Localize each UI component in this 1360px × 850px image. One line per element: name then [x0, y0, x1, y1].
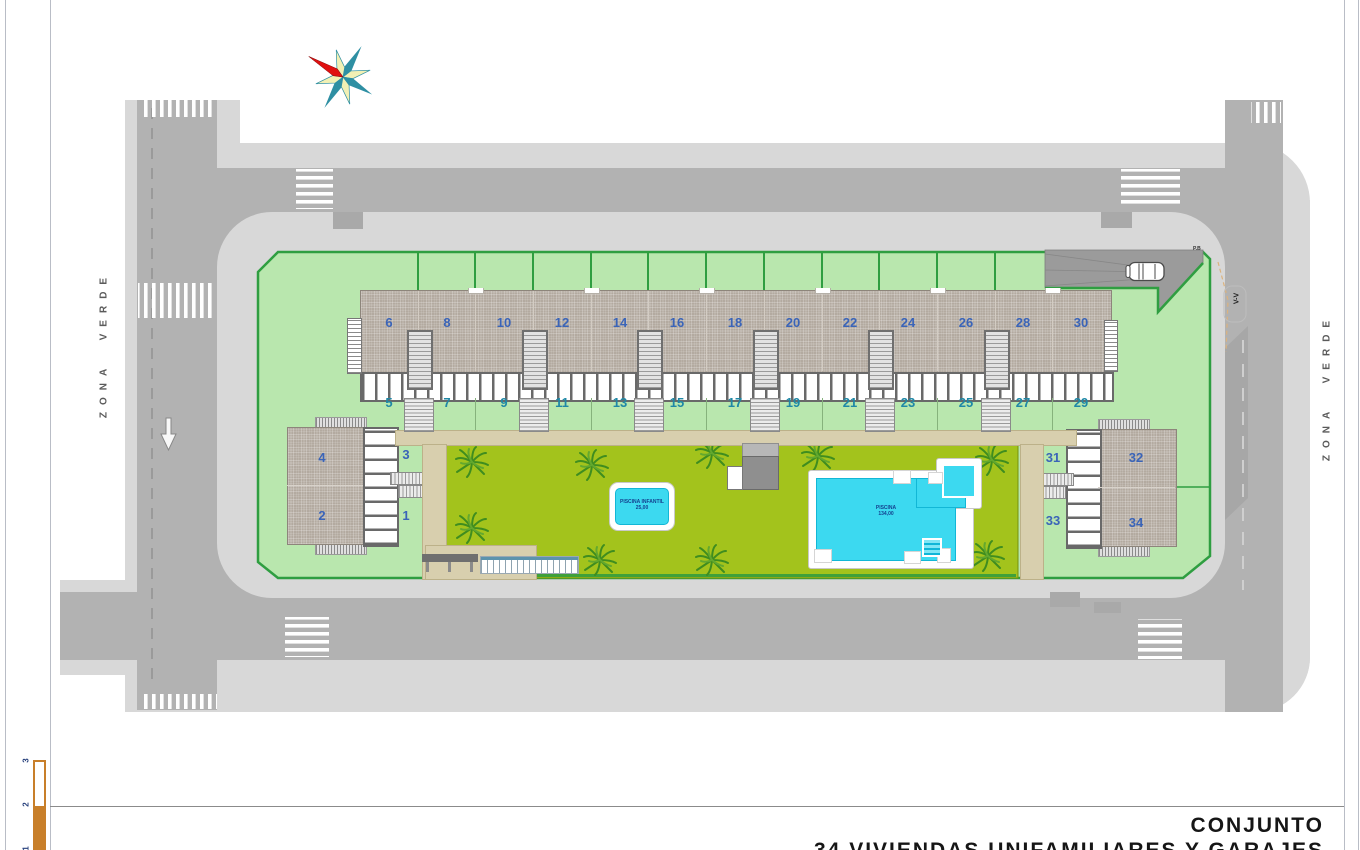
garden-stair: [981, 398, 1011, 432]
canopy-post: [470, 562, 473, 572]
unit-label: 17: [720, 395, 750, 411]
project-title-line1: CONJUNTO: [50, 814, 1344, 838]
site-plan-page: PISCINA INFANTIL25,00 PISCINA134,00 ZONA…: [0, 0, 1360, 850]
unit-label: 10: [489, 315, 519, 331]
section-marker-label: V-V: [1234, 284, 1241, 314]
unit-label: 16: [662, 315, 692, 331]
garden-divider: [706, 398, 707, 430]
unit-label: 5: [374, 395, 404, 411]
pool-platform: [904, 551, 921, 564]
garden-divider: [937, 398, 938, 430]
garden-stair: [865, 398, 895, 432]
unit-label: 24: [893, 315, 923, 331]
stair-shaft: [753, 330, 779, 390]
roof-unit-divider: [706, 291, 707, 371]
unit-label: 28: [1008, 315, 1038, 331]
jacuzzi: [942, 464, 976, 498]
unit-label: 33: [1038, 513, 1068, 529]
pool-steps: [922, 538, 942, 557]
roof-unit-divider: [937, 291, 938, 371]
roof-unit-divider: [822, 291, 823, 371]
canopy-post: [426, 562, 429, 572]
kids-pool-label: PISCINA INFANTIL25,00: [616, 499, 668, 511]
end-stair-west: [347, 318, 362, 374]
unit-label: 27: [1008, 395, 1038, 411]
unit-label: 30: [1066, 315, 1096, 331]
unit-label: 19: [778, 395, 808, 411]
garden-divider: [475, 398, 476, 430]
unit-label: 2: [307, 508, 337, 524]
roof-notch: [930, 288, 946, 294]
unit-label: 20: [778, 315, 808, 331]
project-title-line2: 34 VIVIENDAS UNIFAMILIARES Y GARAJES: [50, 839, 1344, 850]
unit-label: 25: [951, 395, 981, 411]
roof-notch: [1045, 288, 1061, 294]
pool-gate: [727, 466, 743, 490]
roof-unit-divider: [475, 291, 476, 371]
unit-label: 21: [835, 395, 865, 411]
garden-divider: [822, 398, 823, 430]
unit-label: 12: [547, 315, 577, 331]
crosswalk: [1251, 102, 1281, 123]
left-block-terraces: [363, 427, 399, 547]
unit-label: 31: [1038, 450, 1068, 466]
roof-notch: [468, 288, 484, 294]
unit-label: 15: [662, 395, 692, 411]
stair-shaft: [868, 330, 894, 390]
unit-label: 32: [1121, 450, 1151, 466]
garden-stair: [519, 398, 549, 432]
pb-marker-label: P.B: [1193, 246, 1201, 252]
unit-label: 6: [374, 315, 404, 331]
roof-notch: [815, 288, 831, 294]
title-block: CONJUNTO 34 VIVIENDAS UNIFAMILIARES Y GA…: [50, 806, 1344, 850]
crosswalk: [285, 617, 329, 657]
unit-label: 7: [432, 395, 462, 411]
pool-platform: [893, 470, 911, 484]
unit-label: 1: [391, 508, 421, 524]
pool-platform: [928, 472, 943, 484]
unit-label: 18: [720, 315, 750, 331]
crosswalk: [1121, 169, 1180, 208]
unit-label: 29: [1066, 395, 1096, 411]
garden-divider: [1052, 398, 1053, 430]
garden-divider: [591, 398, 592, 430]
garden-stair: [404, 398, 434, 432]
crosswalk: [296, 169, 333, 209]
left-block-roof: [287, 427, 365, 545]
traffic-arrow-icon: [161, 418, 176, 450]
unit-label: 26: [951, 315, 981, 331]
unit-label: 8: [432, 315, 462, 331]
crosswalk: [140, 100, 213, 117]
compass-rose-icon: [278, 13, 403, 138]
unit-label: 14: [605, 315, 635, 331]
canopy: [422, 554, 478, 562]
roof-notch: [699, 288, 715, 294]
end-stair-east: [1104, 320, 1118, 372]
garden-stair: [750, 398, 780, 432]
pool-house: [742, 456, 779, 490]
stair-shaft: [522, 330, 548, 390]
roof-unit-divider: [591, 291, 592, 371]
roof-unit-divider: [1052, 291, 1053, 371]
plan-overlay: [0, 0, 1360, 850]
stair-shaft: [637, 330, 663, 390]
kids-pool: PISCINA INFANTIL25,00: [615, 488, 669, 525]
left-block-roof-divider: [287, 485, 363, 486]
roof-notch: [584, 288, 600, 294]
right-block-roof-divider: [1098, 487, 1175, 488]
unit-label: 4: [307, 450, 337, 466]
stair-shaft: [984, 330, 1010, 390]
unit-label: 23: [893, 395, 923, 411]
bike-racks: [480, 556, 579, 574]
unit-label: 22: [835, 315, 865, 331]
unit-label: 9: [489, 395, 519, 411]
crosswalk: [142, 694, 217, 709]
unit-label: 34: [1121, 515, 1151, 531]
unit-label: 13: [605, 395, 635, 411]
stair-shaft: [407, 330, 433, 390]
garden-stair: [634, 398, 664, 432]
walkway-top: [395, 430, 1077, 446]
pool-platform: [814, 549, 832, 563]
canopy-post: [448, 562, 451, 572]
crosswalk: [1138, 619, 1182, 659]
unit-label: 11: [547, 395, 577, 411]
car-icon: [1126, 263, 1164, 281]
crosswalk: [138, 283, 212, 318]
right-block-terraces: [1066, 429, 1102, 549]
unit-label: 3: [391, 447, 421, 463]
